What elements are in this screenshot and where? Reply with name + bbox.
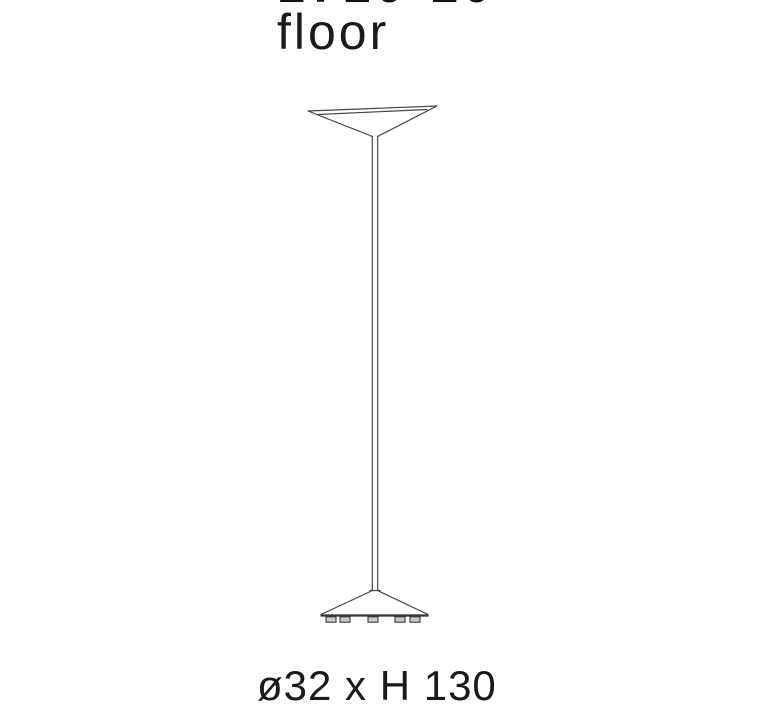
lamp-base	[321, 591, 429, 623]
base-foot	[410, 617, 420, 622]
lamp-stem	[372, 137, 377, 591]
floor-lamp-diagram	[0, 0, 774, 705]
base-foot	[326, 617, 336, 622]
shade-left-slope	[308, 111, 373, 137]
base-right-slope	[378, 591, 429, 615]
base-foot	[368, 617, 378, 622]
lamp-shade	[308, 106, 437, 137]
base-left-slope	[321, 591, 373, 615]
base-foot	[340, 617, 350, 622]
base-foot	[395, 617, 405, 622]
product-dimensions-label: ø32 x H 130	[257, 662, 497, 710]
